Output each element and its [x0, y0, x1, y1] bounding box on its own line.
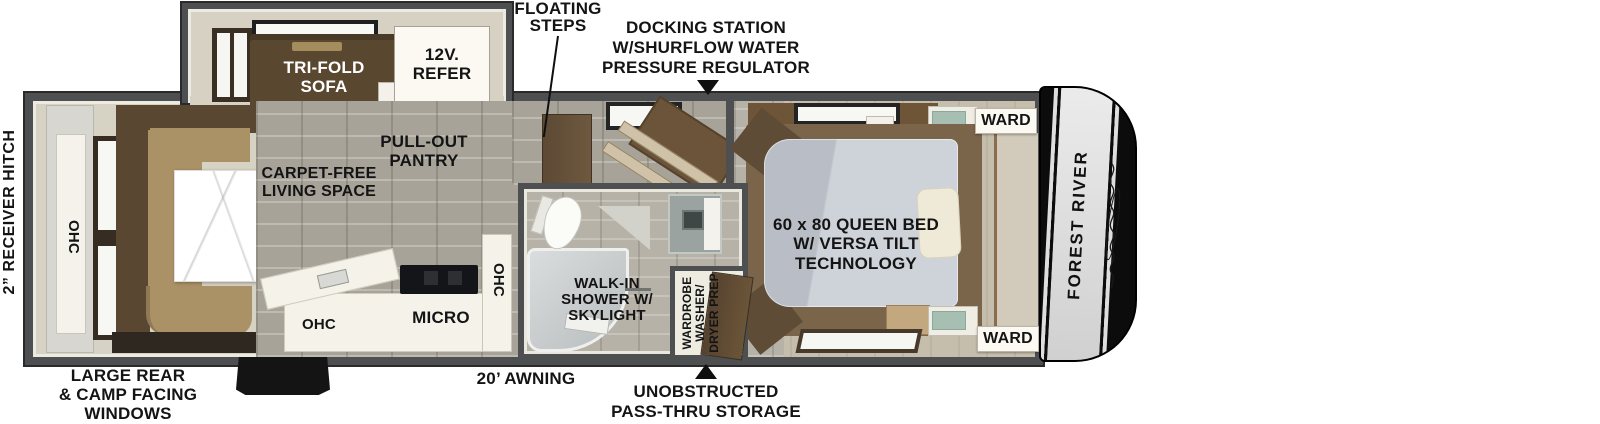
awning-label: 20’ AWNING — [452, 369, 600, 388]
wardrobe-bottom-label: WARD — [983, 330, 1033, 348]
cooktop-burner-left — [424, 271, 438, 285]
bathroom-skylight — [598, 206, 650, 250]
bedroom-floor-vent — [795, 329, 922, 353]
wardrobe-top: WARD — [975, 108, 1037, 134]
walk-in-shower-label: WALK-IN SHOWER W/ SKYLIGHT — [548, 276, 666, 324]
cooktop — [400, 265, 478, 294]
tri-fold-sofa-label: TRI-FOLD SOFA — [252, 58, 396, 96]
nightstand-bottom-glass — [932, 311, 966, 330]
wardrobe-bottom: WARD — [977, 326, 1039, 352]
cooktop-burner-right — [448, 271, 462, 285]
galley-cabinet — [542, 114, 592, 194]
rear-sofa-back-left — [116, 105, 150, 337]
wardrobe-washer-label: WARDROBE WASHER/ DRYER PREP — [681, 269, 723, 357]
arrow-up-icon — [695, 364, 717, 379]
rear-windows-label: LARGE REAR & CAMP FACING WINDOWS — [36, 366, 220, 423]
sofa-cushion-strip — [292, 42, 342, 51]
arrow-down-icon — [697, 80, 719, 95]
rear-ohc-label: OHC — [61, 192, 81, 282]
vanity-sink — [682, 210, 704, 230]
floorplan-canvas: TRI-FOLD SOFA 12V. REFER OHC WARD W — [0, 0, 1600, 424]
rear-floor-shadow — [112, 332, 258, 353]
carpet-free-label: CARPET-FREE LIVING SPACE — [254, 165, 384, 201]
front-dresser — [994, 133, 1038, 328]
refrigerator-label: 12V. REFER — [413, 45, 472, 83]
queen-bed-label: 60 x 80 QUEEN BED W/ VERSA TILT TECHNOLO… — [756, 215, 956, 273]
rear-chaise — [146, 286, 252, 336]
vanity-door — [704, 198, 720, 250]
dinette-table — [174, 170, 258, 282]
docking-station-label: DOCKING STATION W/SHURFLOW WATER PRESSUR… — [578, 18, 834, 78]
receiver-hitch-label: 2” RECEIVER HITCH — [1, 122, 21, 302]
slideout-window — [212, 28, 252, 102]
kitchen-ohc-label: OHC — [288, 317, 350, 334]
brand-signature-icon — [1098, 158, 1126, 292]
wardrobe-top-label: WARD — [981, 112, 1031, 130]
entry-steps — [236, 357, 330, 395]
refrigerator: 12V. REFER — [394, 26, 490, 102]
pass-thru-storage-label: UNOBSTRUCTED PASS-THRU STORAGE — [588, 382, 824, 422]
microwave-label: MICRO — [394, 308, 488, 327]
kitchen-ohc-upper-label: OHC — [488, 240, 506, 320]
